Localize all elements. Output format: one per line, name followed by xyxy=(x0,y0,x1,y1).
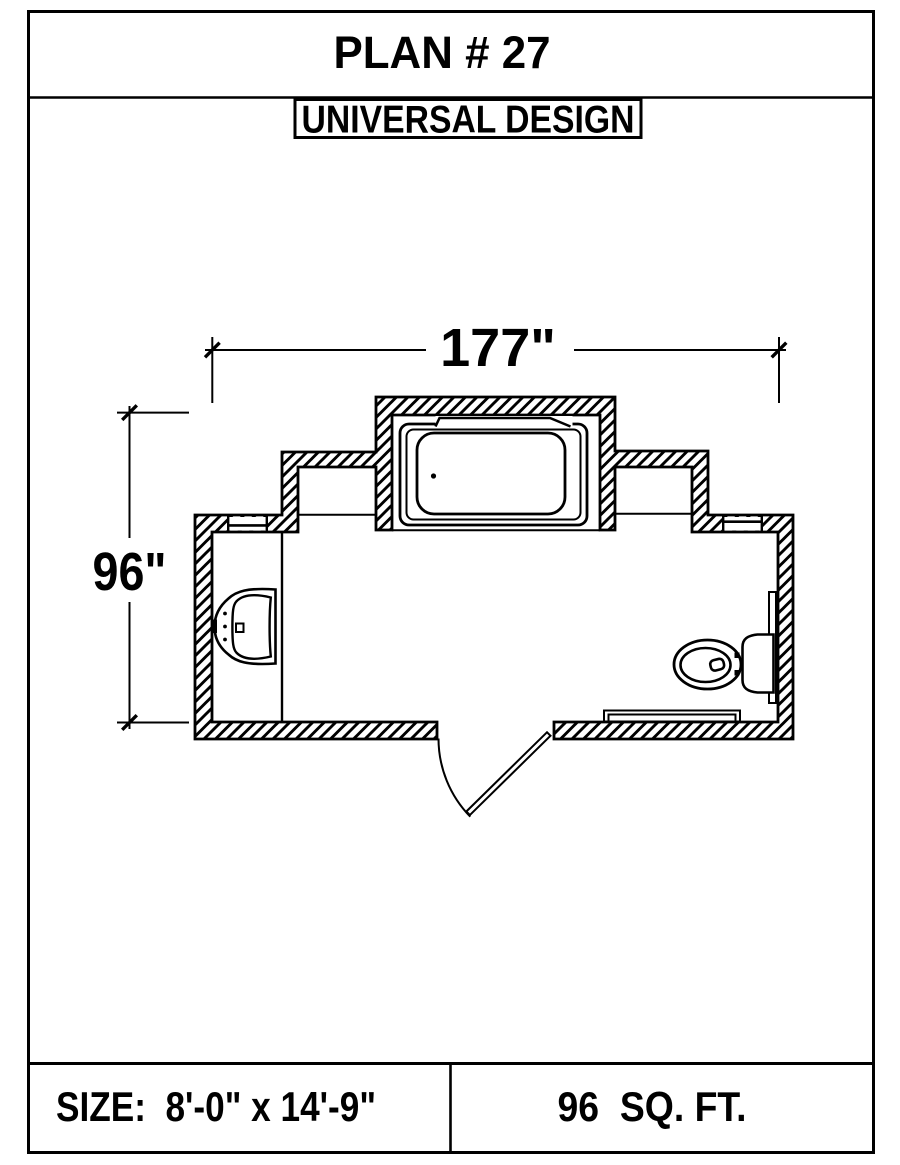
svg-text:96 SQ. FT.: 96 SQ. FT. xyxy=(558,1083,747,1130)
svg-text:SIZE: 8'-0" x 14'-9": SIZE: 8'-0" x 14'-9" xyxy=(56,1083,376,1130)
svg-text:PLAN # 27: PLAN # 27 xyxy=(334,27,551,78)
svg-text:96": 96" xyxy=(93,542,167,602)
svg-text:177": 177" xyxy=(440,318,556,378)
svg-text:UNIVERSAL DESIGN: UNIVERSAL DESIGN xyxy=(302,99,635,142)
